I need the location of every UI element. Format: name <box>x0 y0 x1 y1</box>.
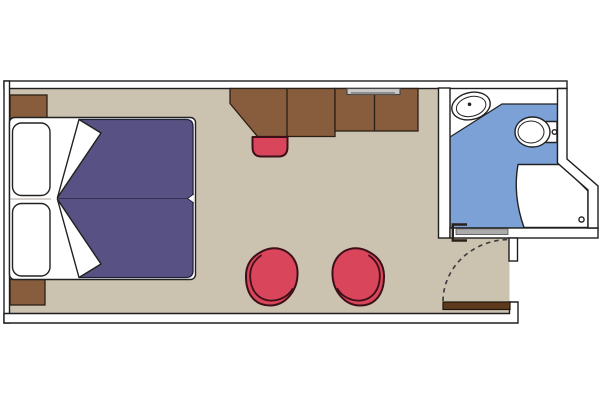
pillow-bottom <box>13 204 51 277</box>
wall-entry-stub <box>509 238 518 261</box>
double-bed <box>10 118 196 280</box>
floor-plan-canvas <box>0 0 600 400</box>
cabin-floor-plan <box>0 0 600 400</box>
wall-left <box>4 81 10 323</box>
nightstand-bottom <box>10 280 45 306</box>
pillow-top <box>13 123 51 196</box>
shower-drain-icon <box>579 217 584 222</box>
desk-wardrobe-unit <box>230 89 418 137</box>
wall-top <box>4 81 567 89</box>
wall-divider <box>439 88 451 238</box>
nightstand-top <box>10 95 47 119</box>
tv-screen <box>351 92 395 94</box>
tub-chair-right <box>332 248 384 305</box>
flush-button-icon <box>552 130 557 135</box>
tub-chair-left <box>246 248 298 305</box>
entry-door <box>443 302 510 310</box>
toilet <box>515 117 557 147</box>
bathroom-door-track <box>456 229 508 235</box>
stool <box>253 137 288 157</box>
